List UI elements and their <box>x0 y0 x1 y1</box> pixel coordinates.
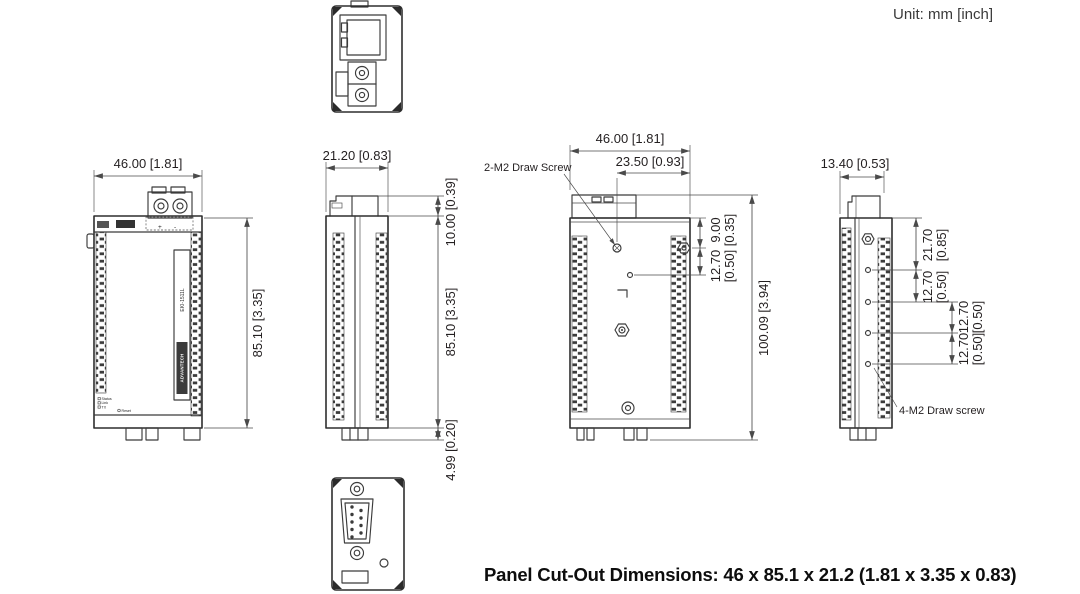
mechanical-drawing-page: + - EKI-1511L ADVANTECH Status Link TX R… <box>0 0 1080 594</box>
brand-logo: ADVANTECH <box>180 353 185 382</box>
led-tx-label: TX <box>102 405 107 409</box>
side-width-dimension: 21.20 [0.83] <box>323 148 392 212</box>
rear-total-height-text: 100.09 [3.94] <box>756 280 771 356</box>
center-hex-nut <box>615 324 629 336</box>
panel-cutout-note: Panel Cut-Out Dimensions: 46 x 85.1 x 21… <box>484 564 1016 585</box>
side-view: 21.20 [0.83] 10.00 [0.39] 85.10 [3.35] 4… <box>323 148 458 481</box>
orientation-mark <box>618 290 627 297</box>
rear-bottom-feet <box>577 428 647 440</box>
top-clip <box>848 196 880 218</box>
side-top-dim-text: 10.00 [0.39] <box>443 178 458 247</box>
rear-dim-9in: [0.35] <box>722 214 737 247</box>
rear-total-height-dimension: 100.09 [3.94] <box>636 195 771 440</box>
rear-callout-text: 2-M2 Draw Screw <box>484 162 571 174</box>
power-terminal-top <box>336 62 376 106</box>
m2-hole-2 <box>866 300 871 305</box>
right-bottom-foot <box>850 428 876 440</box>
model-label: EKI-1511L <box>180 288 186 311</box>
right-dim-12-7in-b: [0.50] <box>970 301 985 334</box>
vent-column <box>572 236 587 412</box>
right-dim-12-7in-c: [0.50] <box>970 333 985 366</box>
right-width-dim-text: 13.40 [0.53] <box>821 156 890 171</box>
bottom-view <box>332 478 404 590</box>
draw-screw-left <box>613 244 621 252</box>
rear-dim-9mm: 9.00 <box>708 217 723 242</box>
terminal-minus-label: - <box>174 224 176 231</box>
front-label: EKI-1511L ADVANTECH <box>174 250 190 400</box>
right-dim-21-7mm: 21.70 <box>920 229 935 262</box>
dip-switch <box>342 571 368 583</box>
vent-column <box>878 238 890 418</box>
front-top-markings: + - <box>97 217 193 231</box>
rear-dim-12mm: 12.70 <box>708 250 723 283</box>
side-width-dim-text: 21.20 [0.83] <box>323 148 392 163</box>
hex-screw <box>862 234 874 244</box>
right-side-view: 13.40 [0.53] 21.70 [0.85] 12.70 [0.50] 1… <box>821 156 985 440</box>
rear-width-dim-text: 46.00 [1.81] <box>596 131 665 146</box>
side-height-dim-text: 85.10 [3.35] <box>443 288 458 357</box>
bottom-screw <box>622 402 634 414</box>
m2-hole-4 <box>866 362 871 367</box>
right-dim-21-7in: [0.85] <box>934 229 949 262</box>
vent-column <box>191 232 201 416</box>
right-callout-text: 4-M2 Draw screw <box>899 405 985 417</box>
m2-hole-1 <box>866 268 871 273</box>
side-bottom-foot <box>342 428 368 440</box>
front-terminal-block <box>148 187 192 218</box>
front-height-dimension: 85.10 [3.35] <box>204 218 265 428</box>
front-width-dim-text: 46.00 [1.81] <box>114 156 183 171</box>
right-dim-12-7in-a: [0.50] <box>934 271 949 304</box>
vent-column <box>96 232 106 393</box>
side-latch <box>87 234 94 248</box>
front-view: + - EKI-1511L ADVANTECH Status Link TX R… <box>87 156 265 440</box>
unit-note: Unit: mm [inch] <box>893 6 993 23</box>
side-bottom-dim-text: 4.99 [0.20] <box>443 419 458 480</box>
rear-width-dimension: 46.00 [1.81] <box>570 131 690 214</box>
right-dim-12-7mm-b: 12.70 <box>956 301 971 334</box>
right-screw-callout: 4-M2 Draw screw <box>874 368 985 417</box>
reset-label: Reset <box>122 409 131 413</box>
db9-connector <box>341 483 373 560</box>
right-width-dimension: 13.40 [0.53] <box>821 156 890 214</box>
right-dim-12-7mm-a: 12.70 <box>920 271 935 304</box>
reset-hole <box>380 559 388 567</box>
rear-dim-12in: [0.50] <box>722 250 737 283</box>
rear-view: 46.00 [1.81] 23.50 [0.93] 2-M2 Draw Scre… <box>484 131 771 440</box>
rear-screw-span-dimension: 23.50 [0.93] <box>616 154 690 242</box>
vent-column <box>842 228 851 420</box>
front-bottom-connector-edge <box>126 428 200 440</box>
vent-column <box>376 233 387 420</box>
front-height-dim-text: 85.10 [3.35] <box>250 289 265 358</box>
pilot-hole <box>628 273 633 278</box>
rear-screw-callout: 2-M2 Draw Screw <box>484 162 615 245</box>
rj45-port <box>340 15 386 60</box>
right-dim-12-7mm-c: 12.70 <box>956 333 971 366</box>
top-view <box>332 1 402 112</box>
drawing-svg: + - EKI-1511L ADVANTECH Status Link TX R… <box>0 0 1080 594</box>
led-labels: Status Link TX Reset <box>98 397 131 413</box>
terminal-plus-label: + <box>158 224 162 231</box>
rear-screw-span-text: 23.50 [0.93] <box>616 154 685 169</box>
m2-hole-3 <box>866 331 871 336</box>
vent-column <box>333 233 344 420</box>
top-clip <box>330 196 378 216</box>
vent-column <box>671 236 686 412</box>
